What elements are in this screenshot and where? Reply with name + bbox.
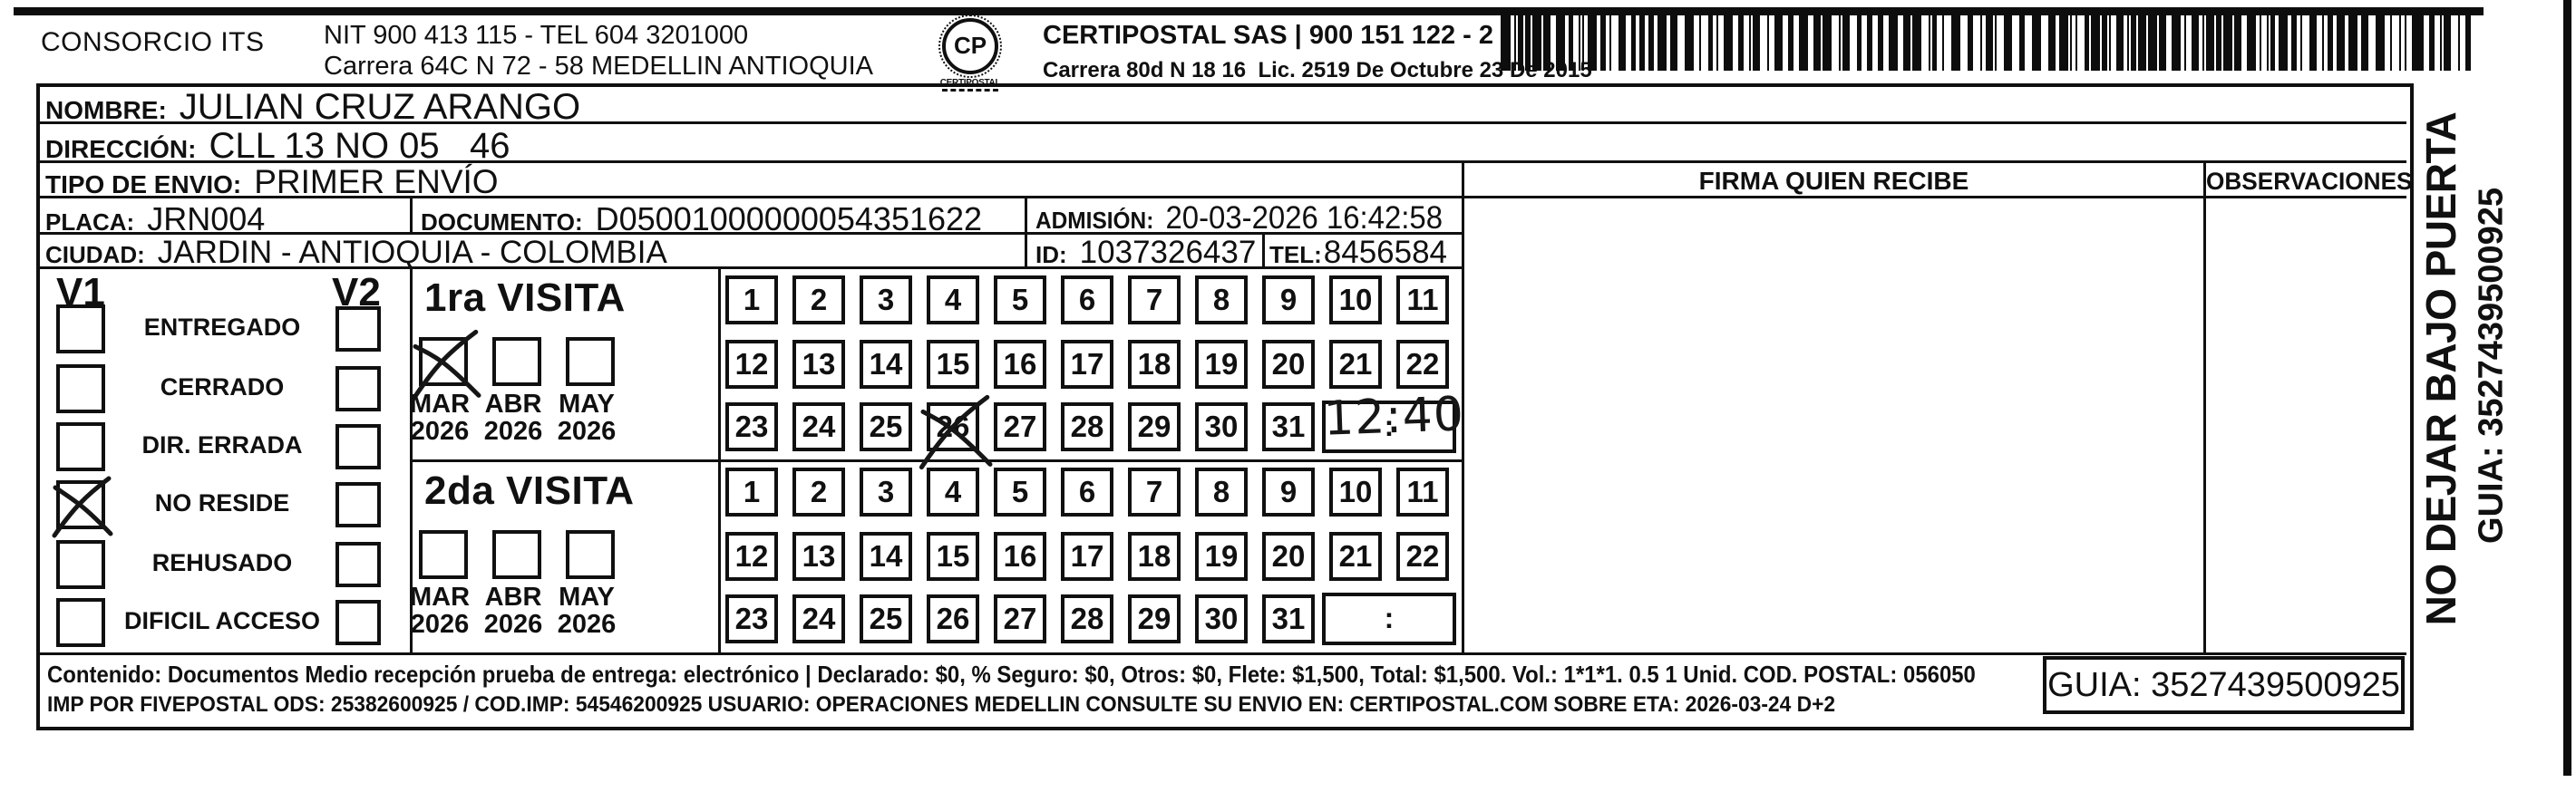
visit-1-day-29: 29 (1128, 402, 1181, 451)
tel-cell: TEL: 8456584 (1269, 235, 1447, 271)
visit-1-day-6: 6 (1061, 275, 1113, 324)
admision-cell: ADMISIÓN: 20-03-2026 16:42:58 (1035, 200, 1443, 237)
visit-1-month-checkbox-abr (492, 337, 541, 386)
visit-2-day-31: 31 (1262, 594, 1315, 643)
visit-2-month-year-mar: 2026 (399, 610, 481, 640)
tel-value: 8456584 (1324, 235, 1447, 271)
visit-2-day-9: 9 (1262, 468, 1315, 517)
visit-2-month-checkbox-mar (419, 530, 468, 579)
visit-2-month-checkbox-abr (492, 530, 541, 579)
handwritten-x-v1-no-reside (60, 484, 102, 526)
sender-address-block: NIT 900 413 115 - TEL 604 3201000Carrera… (324, 20, 873, 82)
visit-1-day-31: 31 (1262, 402, 1315, 451)
checkbox-v2-no-reside (335, 482, 381, 527)
visit-1-day-24: 24 (792, 402, 845, 451)
visit-1-day-5: 5 (994, 275, 1046, 324)
visit-1-day-3: 3 (860, 275, 912, 324)
certipostal-logo: CP CERTIPOSTAL (928, 18, 1012, 92)
checkbox-v2-dificil-acceso (335, 600, 381, 645)
visit-1-day-23: 23 (725, 402, 778, 451)
visit-1-day-9: 9 (1262, 275, 1315, 324)
visit-2-day-16: 16 (994, 532, 1046, 581)
visit-1-day-14: 14 (860, 340, 912, 389)
nombre-row: NOMBRE: JULIAN CRUZ ARANGO (45, 87, 580, 128)
direccion-value: CLL 13 NO 05 46 (209, 126, 510, 167)
visit-1-month-label-may: MAY (546, 390, 627, 420)
divider (410, 196, 413, 232)
visit-2-day-11: 11 (1396, 468, 1449, 517)
status-label-rehusado: REHUSADO (109, 549, 335, 577)
visit-2-day-5: 5 (994, 468, 1046, 517)
side-note-no-dejar: NO DEJAR BAJO PUERTA (2416, 79, 2465, 659)
visit-1-month-year-may: 2026 (546, 417, 627, 447)
visit-1-day-2: 2 (792, 275, 845, 324)
visit-2-day-18: 18 (1128, 532, 1181, 581)
checkbox-v2-entregado (335, 306, 381, 352)
status-label-no-reside: NO RESIDE (109, 489, 335, 517)
visit-1-month-label-abr: ABR (472, 390, 554, 420)
checkbox-v1-entregado (56, 304, 105, 353)
visit-2-day-28: 28 (1061, 594, 1113, 643)
visit-2-month-year-may: 2026 (546, 610, 627, 640)
documento-cell: DOCUMENTO: D05001000000054351622 (421, 200, 982, 238)
visit-1-day-25: 25 (860, 402, 912, 451)
checkbox-v2-rehusado (335, 542, 381, 587)
checkbox-v1-cerrado (56, 364, 105, 413)
visit-1-day-19: 19 (1195, 340, 1248, 389)
id-label: ID: (1035, 241, 1067, 269)
documento-value: D05001000000054351622 (596, 200, 982, 238)
documento-label: DOCUMENTO: (421, 208, 583, 237)
visit-2-month-label-abr: ABR (472, 583, 554, 613)
visit-2-day-22: 22 (1396, 532, 1449, 581)
status-panel: V1 V2 ENTREGADOCERRADODIR. ERRADANO RESI… (36, 266, 410, 652)
placa-cell: PLACA: JRN004 (45, 200, 265, 238)
divider (1262, 232, 1265, 266)
visit-1-day-26: 26 (927, 402, 979, 451)
visit-1-day-17: 17 (1061, 340, 1113, 389)
visit-1-month-label-mar: MAR (399, 390, 481, 420)
side-note-guia: GUIA: 3527439500925 (2473, 167, 2512, 565)
visit-2-month-label-mar: MAR (399, 583, 481, 613)
barcode (1501, 11, 2484, 71)
visit-2-day-13: 13 (792, 532, 845, 581)
status-label-dir-errada: DIR. ERRADA (109, 431, 335, 459)
visit-1-day-18: 18 (1128, 340, 1181, 389)
visit-1-day-21: 21 (1329, 340, 1382, 389)
placa-value: JRN004 (147, 200, 265, 238)
visit-2-day-25: 25 (860, 594, 912, 643)
visit-2-day-27: 27 (994, 594, 1046, 643)
visit-1-title: 1ra VISITA (424, 275, 626, 321)
visit-1-day-8: 8 (1195, 275, 1248, 324)
visit-1-handwritten-x-day-26 (930, 406, 976, 451)
status-label-entregado: ENTREGADO (109, 314, 335, 342)
waybill-document: CONSORCIO ITS NIT 900 413 115 - TEL 604 … (0, 0, 2576, 792)
admision-label: ADMISIÓN: (1035, 207, 1153, 235)
visit-2-day-4: 4 (927, 468, 979, 517)
visit-1-month-year-mar: 2026 (399, 417, 481, 447)
visit-1-day-13: 13 (792, 340, 845, 389)
visit-2-month-label-may: MAY (546, 583, 627, 613)
certipostal-name-line: CERTIPOSTAL SAS | 900 151 122 - 2 (1043, 21, 1493, 50)
visit-1-day-11: 11 (1396, 275, 1449, 324)
visit-1-day-30: 30 (1195, 402, 1248, 451)
visit-1-month-year-abr: 2026 (472, 417, 554, 447)
observaciones-area (2206, 198, 2406, 652)
right-edge-rule (2563, 0, 2571, 776)
visit-2-title: 2da VISITA (424, 468, 635, 514)
visit-1-day-12: 12 (725, 340, 778, 389)
nombre-value: JULIAN CRUZ ARANGO (180, 87, 580, 128)
checkbox-v2-dir-errada (335, 424, 381, 469)
ciudad-label: CIUDAD: (45, 241, 145, 269)
divider (718, 266, 721, 652)
sender-street-line: Carrera 64C N 72 - 58 MEDELLIN ANTIOQUIA (324, 52, 873, 81)
visit-2-day-19: 19 (1195, 532, 1248, 581)
ciudad-cell: CIUDAD: JARDIN - ANTIOQUIA - COLOMBIA (45, 235, 667, 271)
divider (410, 459, 1462, 462)
visit-1-handwritten-x-mar (423, 341, 464, 382)
visit-2-day-24: 24 (792, 594, 845, 643)
checkbox-v1-no-reside (56, 480, 105, 529)
observaciones-header: OBSERVACIONES (2206, 168, 2400, 196)
status-label-cerrado: CERRADO (109, 373, 335, 401)
visit-2-day-17: 17 (1061, 532, 1113, 581)
divider (1025, 196, 1027, 266)
id-value: 1037326437 (1080, 235, 1257, 271)
visit-2-day-20: 20 (1262, 532, 1315, 581)
checkbox-v1-dificil-acceso (56, 598, 105, 647)
visit-1-handwritten-time: 12:40 (1323, 387, 1465, 446)
visit-2-month-year-abr: 2026 (472, 610, 554, 640)
visit-2-day-26: 26 (927, 594, 979, 643)
visit-1-day-10: 10 (1329, 275, 1382, 324)
visit-1-day-15: 15 (927, 340, 979, 389)
direccion-label: DIRECCIÓN: (45, 135, 196, 164)
visit-2-day-21: 21 (1329, 532, 1382, 581)
tipo-envio-row: TIPO DE ENVIO: PRIMER ENVÍO (45, 163, 499, 201)
visit-2-day-3: 3 (860, 468, 912, 517)
visit-1-day-27: 27 (994, 402, 1046, 451)
visit-2-day-29: 29 (1128, 594, 1181, 643)
visit-2-day-2: 2 (792, 468, 845, 517)
guia-number-box: GUIA: 3527439500925 (2043, 656, 2405, 714)
visit-2-day-10: 10 (1329, 468, 1382, 517)
visit-2-day-23: 23 (725, 594, 778, 643)
visit-2-day-8: 8 (1195, 468, 1248, 517)
tipo-envio-label: TIPO DE ENVIO: (45, 170, 241, 199)
checkbox-v2-cerrado (335, 366, 381, 411)
visit-2-day-1: 1 (725, 468, 778, 517)
visit-1-month-checkbox-mar (419, 337, 468, 386)
visit-1-day-28: 28 (1061, 402, 1113, 451)
visit-2-month-checkbox-may (566, 530, 615, 579)
tipo-envio-value: PRIMER ENVÍO (254, 163, 498, 201)
visit-1-day-4: 4 (927, 275, 979, 324)
admision-value: 20-03-2026 16:42:58 (1166, 200, 1444, 237)
visit-1-day-16: 16 (994, 340, 1046, 389)
visit-2-day-14: 14 (860, 532, 912, 581)
visit-2-day-30: 30 (1195, 594, 1248, 643)
status-label-dificil-acceso: DIFICIL ACCESO (109, 607, 335, 635)
contenido-line: Contenido: Documentos Medio recepción pr… (47, 661, 1976, 689)
visit-1-day-7: 7 (1128, 275, 1181, 324)
id-cell: ID: 1037326437 (1035, 235, 1256, 271)
visit-1-day-1: 1 (725, 275, 778, 324)
visit-1-day-20: 20 (1262, 340, 1315, 389)
visit-2-day-6: 6 (1061, 468, 1113, 517)
placa-label: PLACA: (45, 208, 134, 237)
firma-area (1464, 198, 2203, 652)
nit-line: NIT 900 413 115 - TEL 604 3201000 (324, 21, 748, 50)
imp-line: IMP POR FIVEPOSTAL ODS: 25382600925 / CO… (47, 692, 1835, 718)
visit-2-day-7: 7 (1128, 468, 1181, 517)
firma-header: FIRMA QUIEN RECIBE (1464, 167, 2203, 196)
consorcio-title: CONSORCIO ITS (41, 27, 265, 58)
visit-2-time-box: : (1322, 593, 1456, 645)
checkbox-v1-dir-errada (56, 422, 105, 471)
visit-2-day-12: 12 (725, 532, 778, 581)
checkbox-v1-rehusado (56, 540, 105, 589)
divider (36, 652, 2406, 655)
postmark-circle-icon: CP (942, 18, 998, 74)
visit-2-day-15: 15 (927, 532, 979, 581)
nombre-label: NOMBRE: (45, 96, 167, 125)
direccion-row: DIRECCIÓN: CLL 13 NO 05 46 (45, 126, 510, 167)
tel-label: TEL: (1269, 241, 1322, 269)
visit-1-day-22: 22 (1396, 340, 1449, 389)
visit-1-month-checkbox-may (566, 337, 615, 386)
ciudad-value: JARDIN - ANTIOQUIA - COLOMBIA (158, 235, 667, 271)
